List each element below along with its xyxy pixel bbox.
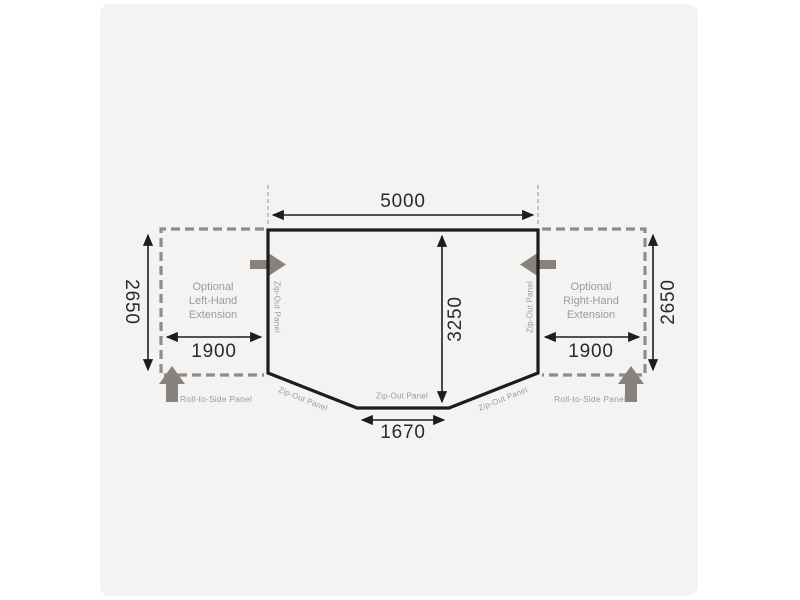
roll-to-side-panel-label-right: Roll-to-Side Panel bbox=[554, 394, 626, 404]
dim-value-right-extension-width: 1900 bbox=[568, 341, 613, 363]
dim-value-top-width: 5000 bbox=[380, 191, 425, 213]
left-extension-label: Optional Left-Hand Extension bbox=[189, 280, 237, 322]
dim-value-left-extension-width: 1900 bbox=[191, 341, 236, 363]
right-extension-label-line2: Right-Hand bbox=[563, 294, 619, 308]
dim-value-left-extension-depth: 2650 bbox=[120, 279, 142, 324]
left-extension-label-line1: Optional bbox=[189, 280, 237, 294]
left-extension-label-line3: Extension bbox=[189, 308, 237, 322]
dim-value-front-panel: 1670 bbox=[380, 422, 425, 444]
dim-value-depth: 3250 bbox=[445, 296, 467, 341]
awning-floorplan-diagram: 5000 3250 1670 1900 1900 2650 2650 Optio… bbox=[0, 0, 800, 600]
zip-out-panel-label-left-wall: Zip-Out Panel bbox=[273, 281, 282, 333]
right-extension-label: Optional Right-Hand Extension bbox=[563, 280, 619, 322]
right-extension-label-line1: Optional bbox=[563, 280, 619, 294]
left-extension-label-line2: Left-Hand bbox=[189, 294, 237, 308]
dim-value-right-extension-depth: 2650 bbox=[658, 279, 680, 324]
roll-to-side-panel-label-left: Roll-to-Side Panel bbox=[180, 394, 252, 404]
right-extension-label-line3: Extension bbox=[563, 308, 619, 322]
zip-out-panel-label-right-wall: Zip-Out Panel bbox=[526, 281, 535, 333]
zip-out-panel-label-front-center: Zip-Out Panel bbox=[376, 392, 428, 401]
